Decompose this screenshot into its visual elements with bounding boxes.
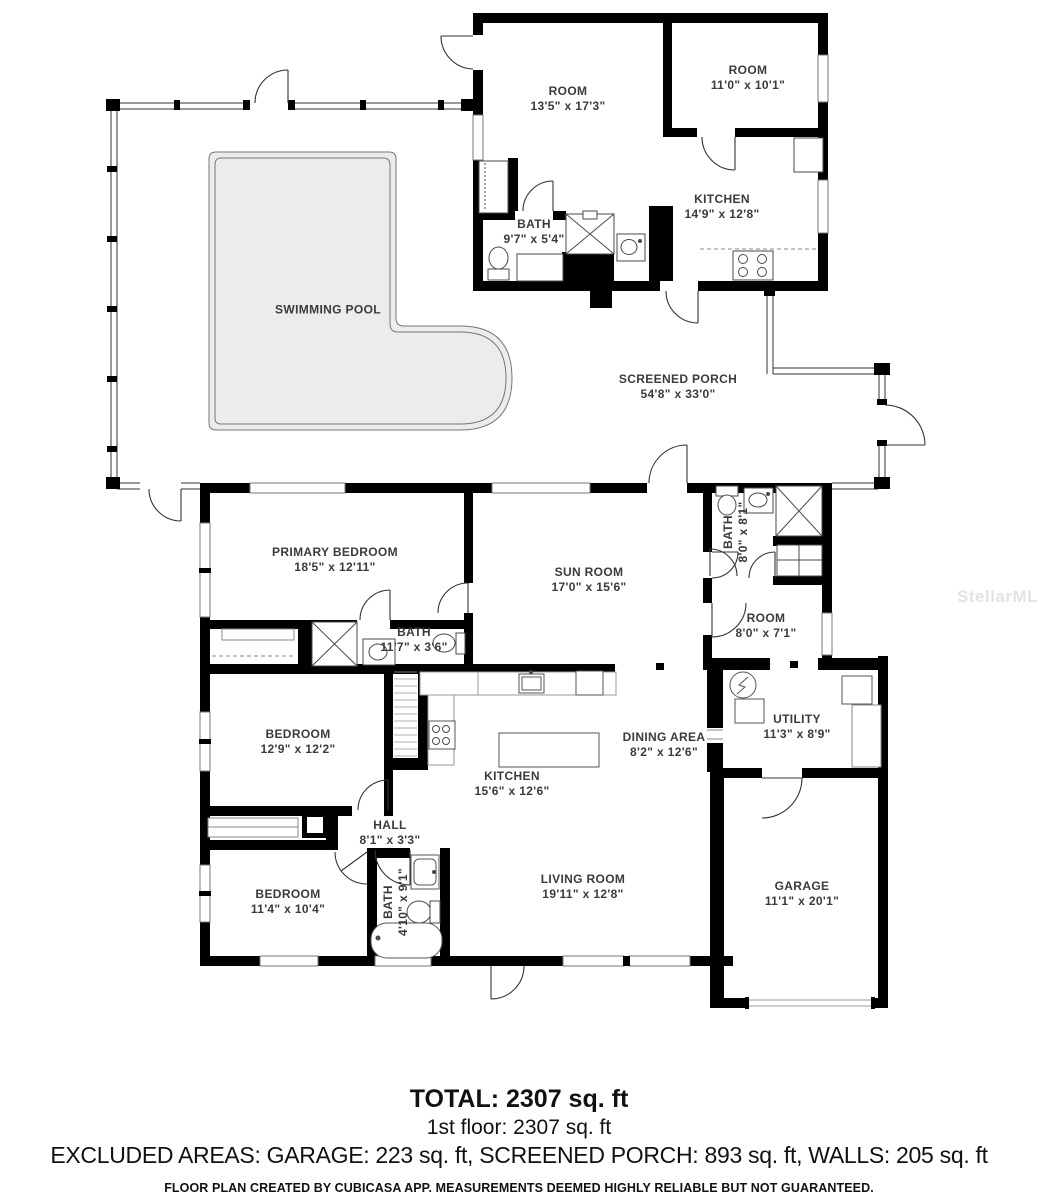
room-label-sun-room: SUN ROOM 17'0" x 15'6" bbox=[551, 565, 626, 595]
swimming-pool-shape bbox=[209, 152, 512, 430]
room-dims: 19'11" x 12'8" bbox=[541, 887, 626, 902]
room-dims: 8'2" x 12'6" bbox=[623, 745, 706, 760]
room-name: HALL bbox=[360, 818, 421, 833]
total-area-text: TOTAL: 2307 sq. ft bbox=[0, 1084, 1038, 1114]
room-name: BEDROOM bbox=[260, 727, 335, 742]
room-dims: 8'0" x 8'1" bbox=[736, 502, 751, 563]
room-label-kitchen-upper: KITCHEN 14'9" x 12'8" bbox=[684, 192, 759, 222]
room-label-bath-primary: BATH 11'7" x 3'6" bbox=[380, 625, 447, 655]
room-dims: 11'1" x 20'1" bbox=[765, 894, 839, 909]
room-label-room-middle: ROOM 8'0" x 7'1" bbox=[736, 611, 797, 641]
room-dims: 14'9" x 12'8" bbox=[684, 207, 759, 222]
room-dims: 12'9" x 12'2" bbox=[260, 742, 335, 757]
room-label-bath-upper: BATH 9'7" x 5'4" bbox=[504, 217, 565, 247]
room-dims: 11'0" x 10'1" bbox=[711, 78, 785, 93]
excluded-areas-text: EXCLUDED AREAS: GARAGE: 223 sq. ft, SCRE… bbox=[0, 1141, 1038, 1169]
area-summary: TOTAL: 2307 sq. ft 1st floor: 2307 sq. f… bbox=[0, 1084, 1038, 1196]
room-name: KITCHEN bbox=[684, 192, 759, 207]
room-dims: 15'6" x 12'6" bbox=[474, 784, 549, 799]
room-name: PRIMARY BEDROOM bbox=[272, 545, 398, 560]
room-dims: 11'7" x 3'6" bbox=[380, 640, 447, 655]
room-label-utility: UTILITY 11'3" x 8'9" bbox=[763, 712, 830, 742]
room-name: KITCHEN bbox=[474, 769, 549, 784]
room-name: BATH bbox=[721, 502, 736, 563]
room-label-room-upper-right: ROOM 11'0" x 10'1" bbox=[711, 63, 785, 93]
room-label-hall: HALL 8'1" x 3'3" bbox=[360, 818, 421, 848]
room-name: BATH bbox=[381, 868, 396, 936]
room-name: BATH bbox=[504, 217, 565, 232]
room-label-kitchen-main: KITCHEN 15'6" x 12'6" bbox=[474, 769, 549, 799]
room-dims: 8'0" x 7'1" bbox=[736, 626, 797, 641]
room-name: SWIMMING POOL bbox=[275, 303, 381, 318]
room-name: ROOM bbox=[711, 63, 785, 78]
room-label-primary-bedroom: PRIMARY BEDROOM 18'5" x 12'11" bbox=[272, 545, 398, 575]
room-label-living-room: LIVING ROOM 19'11" x 12'8" bbox=[541, 872, 626, 902]
room-label-bedroom-middle: BEDROOM 12'9" x 12'2" bbox=[260, 727, 335, 757]
room-dims: 9'7" x 5'4" bbox=[504, 232, 565, 247]
room-dims: 8'1" x 3'3" bbox=[360, 833, 421, 848]
room-name: BATH bbox=[380, 625, 447, 640]
room-name: SCREENED PORCH bbox=[619, 372, 737, 387]
room-name: DINING AREA bbox=[623, 730, 706, 745]
floor-plan-drawing bbox=[0, 0, 1038, 1080]
first-floor-area-text: 1st floor: 2307 sq. ft bbox=[0, 1114, 1038, 1141]
room-label-screened-porch: SCREENED PORCH 54'8" x 33'0" bbox=[619, 372, 737, 402]
room-dims: 18'5" x 12'11" bbox=[272, 560, 398, 575]
disclaimer-text: FLOOR PLAN CREATED BY CUBICASA APP. MEAS… bbox=[0, 1181, 1038, 1196]
watermark: StellarMLS bbox=[957, 587, 1038, 607]
room-name: LIVING ROOM bbox=[541, 872, 626, 887]
room-label-dining-area: DINING AREA 8'2" x 12'6" bbox=[623, 730, 706, 760]
room-label-bath-hall: BATH 4'10" x 9'1" bbox=[381, 868, 411, 936]
room-dims: 17'0" x 15'6" bbox=[551, 580, 626, 595]
room-dims: 13'5" x 17'3" bbox=[530, 99, 605, 114]
room-dims: 11'4" x 10'4" bbox=[251, 902, 325, 917]
floor-plan-canvas: ROOM 13'5" x 17'3" ROOM 11'0" x 10'1" KI… bbox=[0, 0, 1038, 1200]
room-dims: 54'8" x 33'0" bbox=[619, 387, 737, 402]
room-name: ROOM bbox=[736, 611, 797, 626]
room-label-bath-ensuite: BATH 8'0" x 8'1" bbox=[721, 502, 751, 563]
room-label-bedroom-lower: BEDROOM 11'4" x 10'4" bbox=[251, 887, 325, 917]
room-name: BEDROOM bbox=[251, 887, 325, 902]
room-name: UTILITY bbox=[763, 712, 830, 727]
room-label-swimming-pool: SWIMMING POOL bbox=[275, 303, 381, 318]
room-name: ROOM bbox=[530, 84, 605, 99]
room-label-garage: GARAGE 11'1" x 20'1" bbox=[765, 879, 839, 909]
room-label-room-upper-left: ROOM 13'5" x 17'3" bbox=[530, 84, 605, 114]
room-name: GARAGE bbox=[765, 879, 839, 894]
room-dims: 11'3" x 8'9" bbox=[763, 727, 830, 742]
room-dims: 4'10" x 9'1" bbox=[396, 868, 411, 936]
room-name: SUN ROOM bbox=[551, 565, 626, 580]
